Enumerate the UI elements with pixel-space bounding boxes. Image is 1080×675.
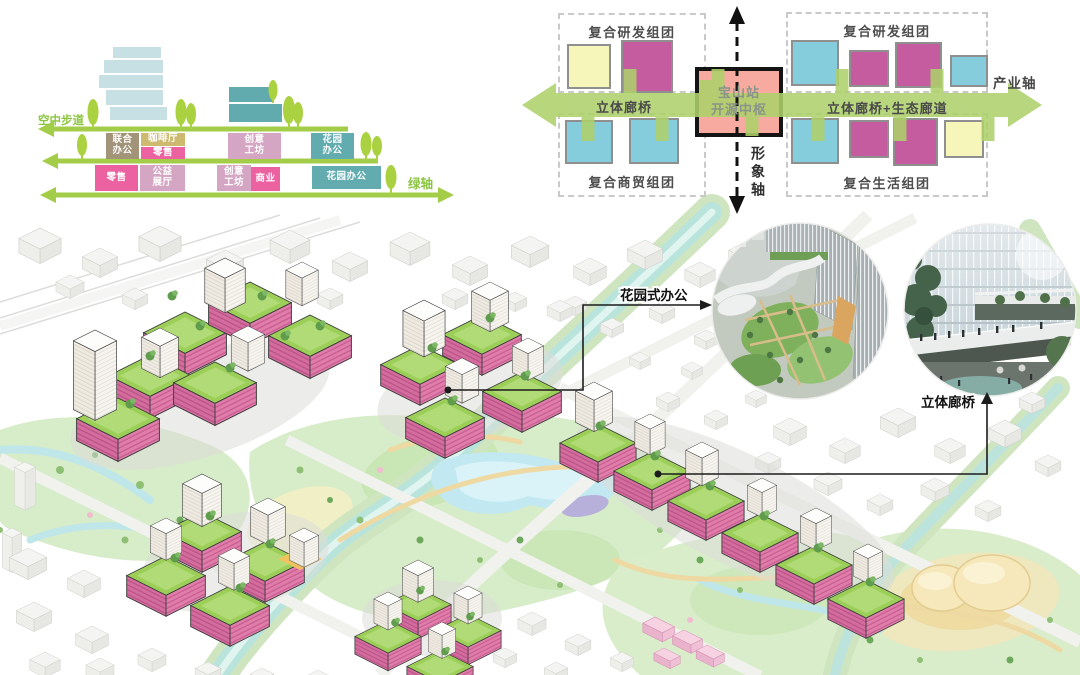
corridor-right-label: 立体廊桥+生态廊道 bbox=[827, 98, 948, 117]
use-box-joint-office: 联合 办公 bbox=[106, 133, 139, 159]
corridor-left-label: 立体廊桥 bbox=[596, 97, 652, 116]
sky-walkway-label: 空中步道 bbox=[38, 113, 84, 127]
axis-diagram: 宝山站 开源中枢 复合研发组团 复合商贸组团 复合研发组团 复合生活组团 立体廊… bbox=[520, 0, 1080, 216]
lightblue-building bbox=[99, 47, 167, 120]
use-box-maker-upper: 创意 工坊 bbox=[228, 133, 281, 159]
industry-axis-label: 产业轴 bbox=[993, 72, 1037, 92]
sky-corridor-label: 立体廊桥 bbox=[921, 394, 975, 410]
use-box-cafe: 咖啡厅 bbox=[141, 133, 185, 146]
use-box-gallery: 公益 展厅 bbox=[140, 165, 185, 191]
slide-canvas: 花园式办公 立体廊桥 bbox=[0, 0, 1080, 675]
use-box-maker-ground: 创意 工坊 bbox=[217, 165, 251, 191]
green-axis-label: 绿轴 bbox=[408, 176, 433, 191]
garden-office-label: 花园式办公 bbox=[620, 287, 688, 303]
cluster-label-bottom-left: 复合商贸组团 bbox=[577, 172, 687, 191]
arrow-right-icon bbox=[700, 300, 712, 310]
image-axis-label: 形象轴 bbox=[748, 146, 768, 200]
arrow-up-icon bbox=[729, 6, 745, 24]
cluster-label-top-left: 复合研发组团 bbox=[577, 22, 687, 41]
section-diagram: 空中步道 绿轴 联合 办公 咖啡厅 零售 创意 工坊 花园 办公 零售 公益 展… bbox=[0, 0, 470, 215]
use-box-commerce: 商业 bbox=[251, 167, 280, 191]
photo-inset-garden-office bbox=[712, 223, 900, 402]
use-box-garden-ground: 花园办公 bbox=[312, 166, 381, 189]
hub-label: 宝山站 开源中枢 bbox=[695, 67, 783, 137]
cluster-label-top-right: 复合研发组团 bbox=[832, 21, 942, 40]
use-box-retail-upper: 零售 bbox=[141, 147, 185, 159]
use-box-retail-ground: 零售 bbox=[95, 165, 138, 191]
cluster-label-bottom-right: 复合生活组团 bbox=[832, 173, 942, 192]
use-box-garden-upper: 花园 办公 bbox=[311, 133, 354, 159]
arrow-down-icon bbox=[729, 196, 745, 214]
